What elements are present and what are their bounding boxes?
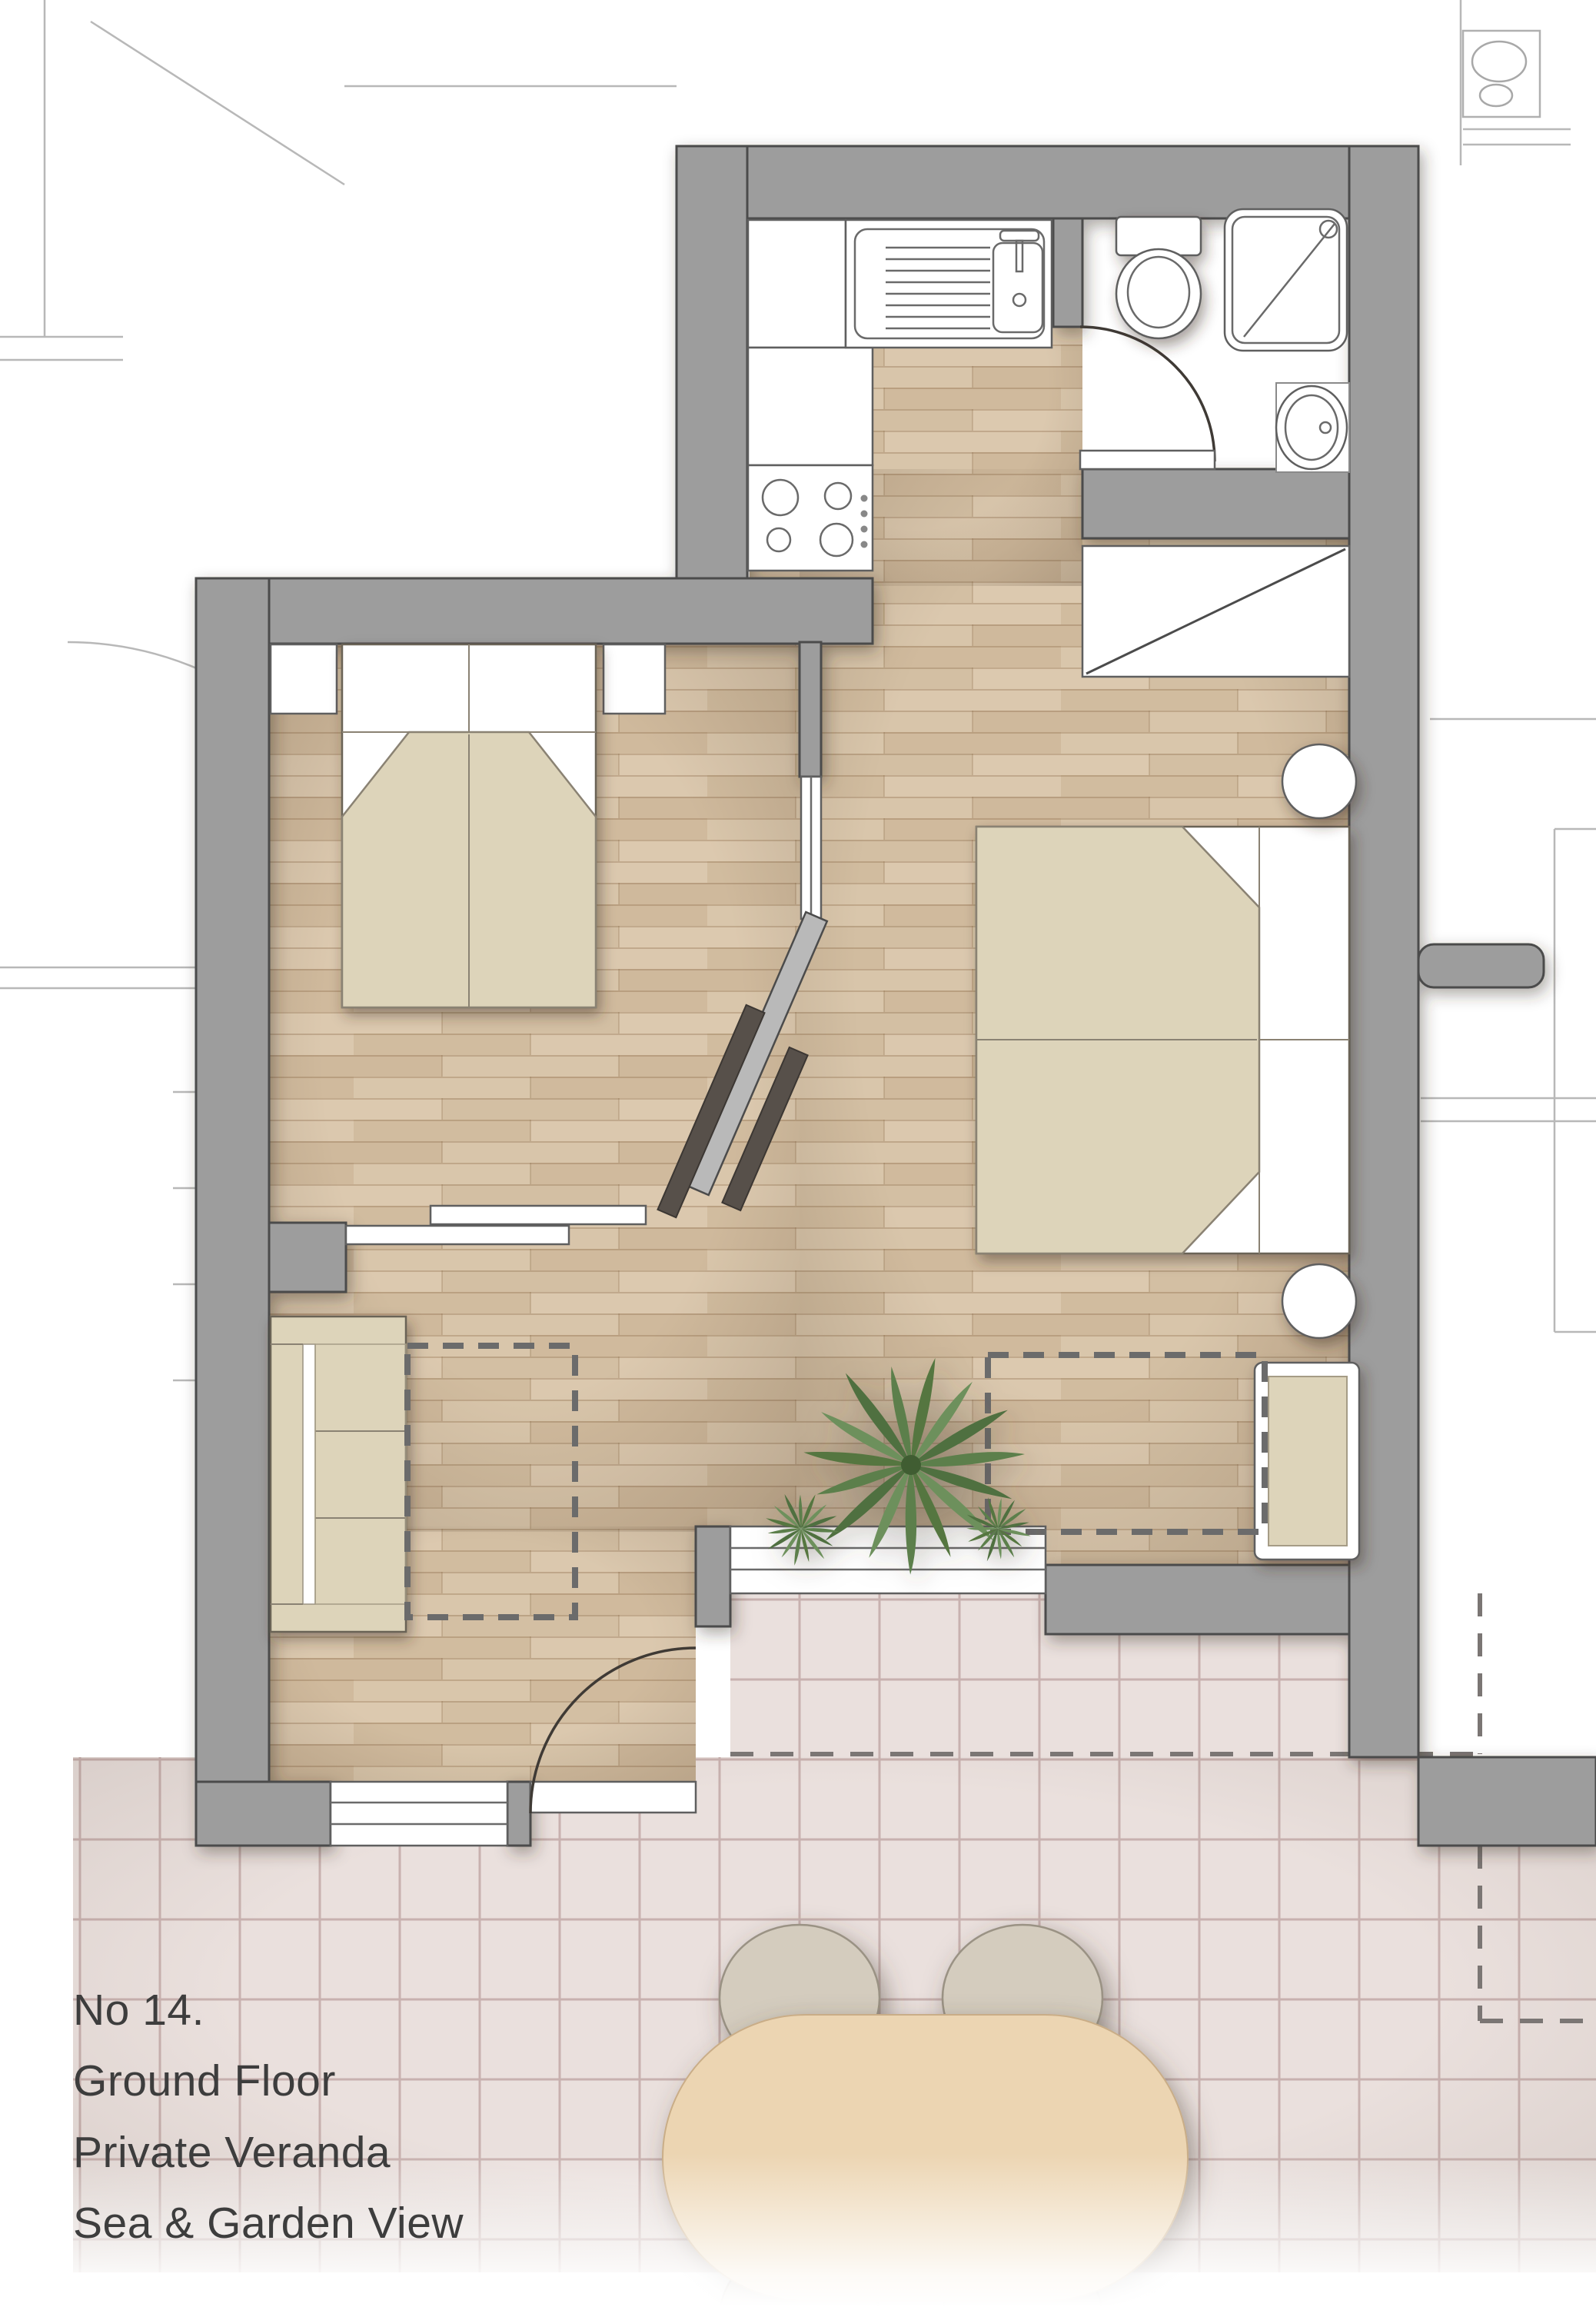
- wall-bedroom-south: [1046, 1565, 1349, 1634]
- partition-wall: [800, 642, 821, 777]
- console-shelf: [346, 1226, 569, 1244]
- console-shelf: [431, 1206, 646, 1224]
- neighbor-fixture-icon: [1463, 31, 1571, 145]
- wall-top: [677, 146, 1418, 218]
- sofa-icon: [271, 1317, 406, 1632]
- kitchen-sink-icon: [846, 220, 1052, 348]
- floor-plan-drawing: [0, 0, 1596, 2307]
- toilet-icon: [1116, 217, 1201, 338]
- wall-bottom-left: [196, 1782, 331, 1846]
- sliding-glass-door: [801, 777, 821, 919]
- caption-unit-number: No 14.: [73, 1975, 464, 2046]
- wall-bathroom-south: [1082, 469, 1349, 538]
- wall-veranda-pillar: [696, 1526, 730, 1626]
- caption: No 14. Ground Floor Private Veranda Sea …: [73, 1975, 464, 2259]
- kitchen-cabinet: [748, 348, 873, 465]
- caption-feature-veranda: Private Veranda: [73, 2117, 464, 2188]
- nightstand-icon: [603, 644, 665, 714]
- wall-bathroom-stub: [1053, 218, 1082, 327]
- round-stool-icon: [1282, 1264, 1356, 1338]
- wall-stub-left: [269, 1223, 346, 1292]
- wall-left-lower: [196, 578, 269, 1846]
- wall-bottom-mid: [507, 1782, 530, 1846]
- nightstand-icon: [271, 644, 337, 714]
- wall-stub-right: [1418, 944, 1544, 987]
- floor-plan-canvas: No 14. Ground Floor Private Veranda Sea …: [0, 0, 1596, 2307]
- wall-left-upper: [677, 146, 747, 578]
- caption-floor: Ground Floor: [73, 2046, 464, 2116]
- washbasin-icon: [1276, 383, 1349, 472]
- bathroom-door-leaf: [1080, 451, 1215, 469]
- wardrobe-icon: [1082, 546, 1349, 677]
- wall-bottom-right-pillar: [1418, 1757, 1596, 1846]
- double-bed-icon: [976, 827, 1349, 1253]
- bathroom-door-arc: [1080, 327, 1215, 461]
- kitchen-corner-cabinet: [748, 220, 846, 348]
- round-stool-icon: [1282, 744, 1356, 818]
- neighbor-door-swing: [91, 22, 344, 185]
- double-bed-icon: [342, 644, 596, 1007]
- cooktop-icon: [748, 465, 873, 571]
- caption-feature-view: Sea & Garden View: [73, 2188, 464, 2259]
- shower-icon: [1225, 209, 1347, 351]
- bathroom: [1116, 209, 1349, 472]
- veranda-door-threshold: [530, 1782, 696, 1813]
- window-living-south: [331, 1782, 507, 1846]
- bench-icon: [1255, 1363, 1359, 1560]
- wall-under-kitchen: [196, 578, 873, 644]
